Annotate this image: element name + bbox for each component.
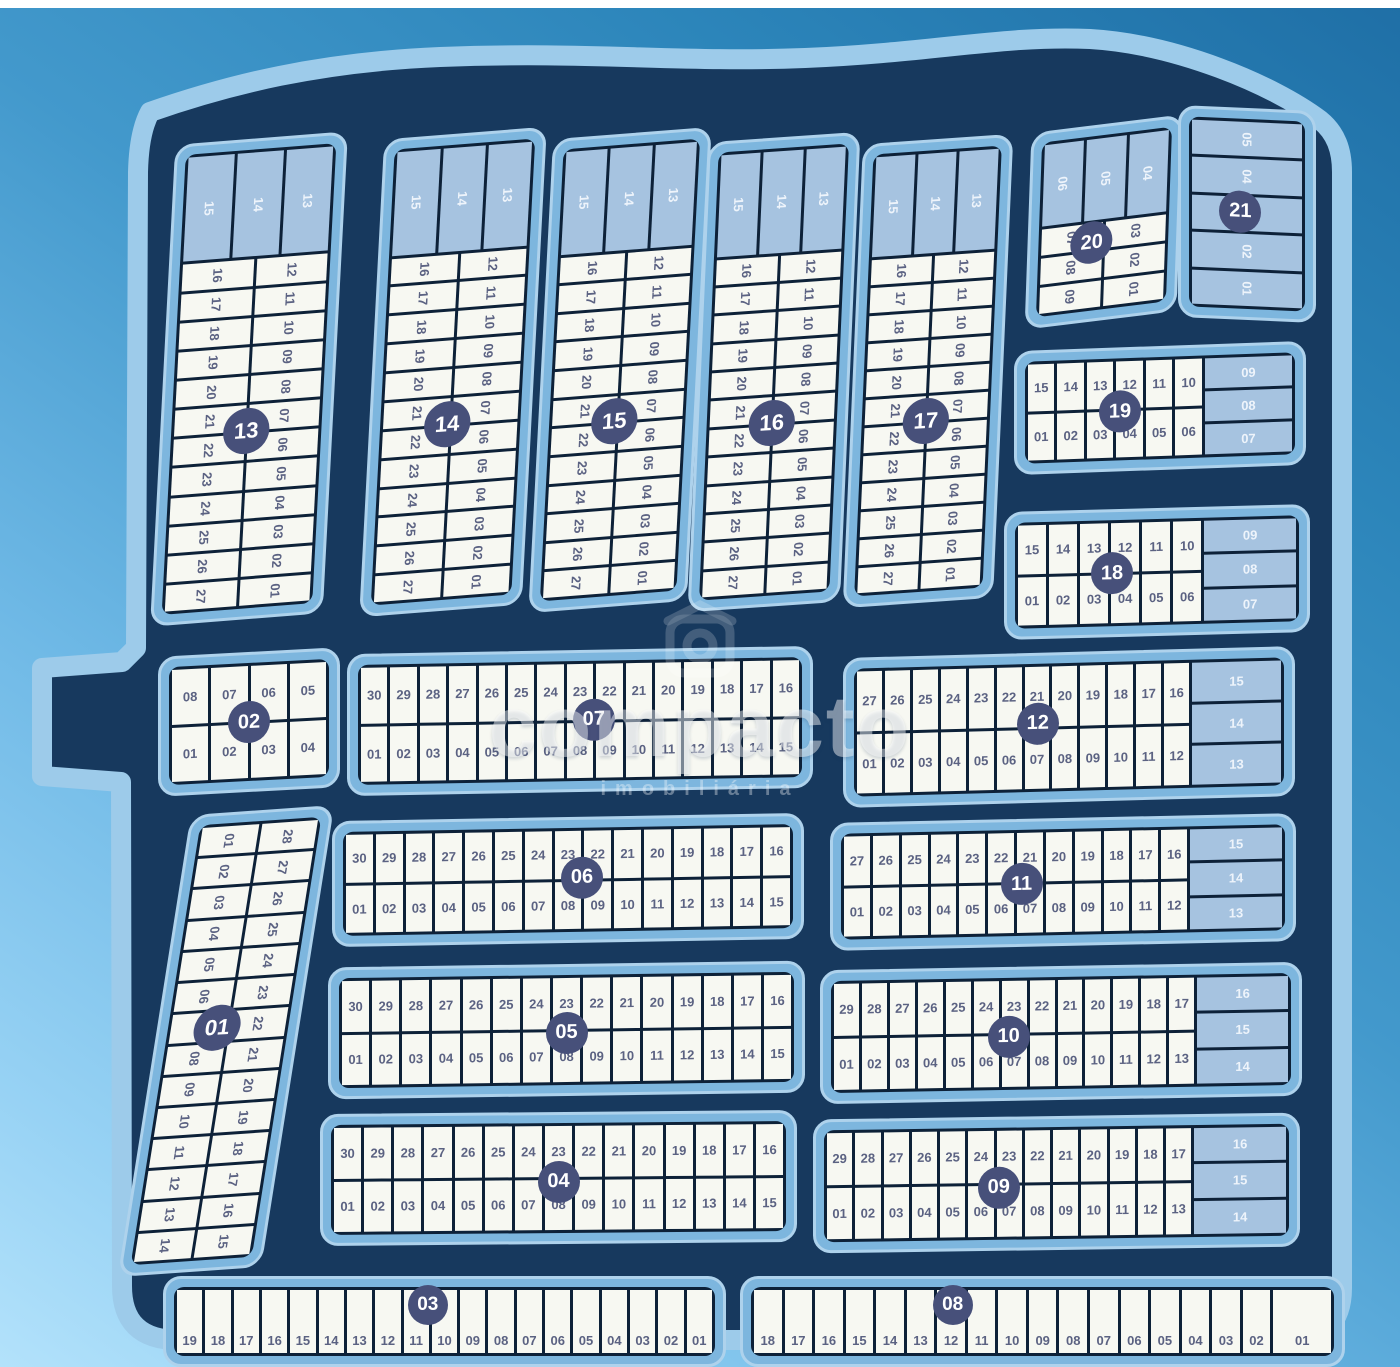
lot-07-11[interactable]: 11 <box>655 721 681 777</box>
lot-06-28[interactable]: 28 <box>406 833 433 881</box>
lot-05-22[interactable]: 22 <box>583 977 610 1028</box>
lot-02-04[interactable]: 04 <box>290 719 326 775</box>
lot-06-15[interactable]: 15 <box>763 878 790 926</box>
lot-10-03[interactable]: 03 <box>890 1037 915 1089</box>
lot-18-10[interactable]: 10 <box>1173 521 1201 570</box>
lot-01-23[interactable]: 23 <box>233 976 294 1008</box>
lot-05-09[interactable]: 09 <box>583 1031 610 1082</box>
lot-15-09[interactable]: 09 <box>622 333 687 364</box>
lot-13-14[interactable]: 14 <box>232 150 284 258</box>
lot-11-01[interactable]: 01 <box>844 888 870 937</box>
lot-13-20[interactable]: 20 <box>175 376 247 408</box>
lot-16-19[interactable]: 19 <box>712 341 774 371</box>
lot-07-25[interactable]: 25 <box>508 665 534 721</box>
lot-14-03[interactable]: 03 <box>446 508 513 539</box>
lot-13-17[interactable]: 17 <box>180 289 252 321</box>
lot-13-18[interactable]: 18 <box>179 318 251 350</box>
lot-12-23[interactable]: 23 <box>969 668 994 728</box>
lot-09-21[interactable]: 21 <box>1053 1130 1078 1182</box>
lot-04-16[interactable]: 16 <box>756 1124 783 1175</box>
lot-15-02[interactable]: 02 <box>611 534 676 565</box>
lot-05-24[interactable]: 24 <box>523 978 550 1029</box>
lot-06-20[interactable]: 20 <box>644 829 671 877</box>
lot-19-10[interactable]: 10 <box>1175 359 1201 406</box>
lot-10-21[interactable]: 21 <box>1058 980 1083 1032</box>
lot-11-04[interactable]: 04 <box>931 886 957 935</box>
lot-03-16[interactable]: 16 <box>262 1290 287 1353</box>
lot-18-15[interactable]: 15 <box>1018 525 1046 574</box>
lot-01-10[interactable]: 10 <box>154 1105 215 1137</box>
lot-09-09[interactable]: 09 <box>1053 1184 1078 1236</box>
lot-11-08[interactable]: 08 <box>1046 883 1072 932</box>
lot-01-12[interactable]: 12 <box>144 1168 205 1200</box>
lot-07-10[interactable]: 10 <box>626 721 652 777</box>
lot-13-11[interactable]: 11 <box>254 283 326 315</box>
lot-06-05[interactable]: 05 <box>465 883 492 931</box>
lot-13-10[interactable]: 10 <box>252 312 324 344</box>
lot-06-27[interactable]: 27 <box>435 833 462 881</box>
lot-14-10[interactable]: 10 <box>456 306 523 337</box>
lot-17-05[interactable]: 05 <box>925 448 986 477</box>
lot-16-27[interactable]: 27 <box>702 568 764 598</box>
lot-11-18[interactable]: 18 <box>1104 831 1130 880</box>
lot-15-26[interactable]: 26 <box>545 539 610 570</box>
lot-08-09[interactable]: 09 <box>1029 1290 1057 1353</box>
lot-17-27[interactable]: 27 <box>857 564 918 593</box>
lot-12-18[interactable]: 18 <box>1108 664 1133 724</box>
lot-01-11[interactable]: 11 <box>149 1136 210 1168</box>
lot-12-03[interactable]: 03 <box>913 732 938 792</box>
lot-14-17[interactable]: 17 <box>389 282 456 313</box>
lot-08-14[interactable]: 14 <box>876 1290 904 1353</box>
lot-17-13[interactable]: 13 <box>956 149 999 252</box>
lot-01-14[interactable]: 14 <box>134 1230 195 1262</box>
lot-09-13[interactable]: 13 <box>1166 1183 1191 1235</box>
lot-19-02[interactable]: 02 <box>1057 412 1083 459</box>
lot-10-09[interactable]: 09 <box>1058 1034 1083 1086</box>
lot-10-01[interactable]: 01 <box>834 1038 859 1090</box>
lot-04-18[interactable]: 18 <box>696 1125 723 1176</box>
lot-03-15[interactable]: 15 <box>290 1290 315 1353</box>
lot-07-16[interactable]: 16 <box>773 660 799 716</box>
lot-06-06[interactable]: 06 <box>495 882 522 930</box>
lot-09-22[interactable]: 22 <box>1025 1130 1050 1182</box>
lot-14-02[interactable]: 02 <box>444 537 511 568</box>
lot-12-09[interactable]: 09 <box>1080 728 1105 788</box>
lot-10-11[interactable]: 11 <box>1113 1033 1138 1085</box>
lot-10-12[interactable]: 12 <box>1141 1033 1166 1085</box>
lot-13-25[interactable]: 25 <box>168 522 240 554</box>
lot-04-05[interactable]: 05 <box>455 1180 482 1231</box>
lot-19-05[interactable]: 05 <box>1146 409 1172 456</box>
lot-13-12[interactable]: 12 <box>255 254 327 286</box>
lot-06-07[interactable]: 07 <box>525 882 552 930</box>
lot-15-27[interactable]: 27 <box>543 568 608 599</box>
lot-16-18[interactable]: 18 <box>713 312 775 342</box>
lot-17-15[interactable]: 15 <box>872 155 915 258</box>
lot-03-13[interactable]: 13 <box>347 1290 372 1353</box>
lot-16-17[interactable]: 17 <box>715 284 777 314</box>
lot-13-27[interactable]: 27 <box>165 580 237 612</box>
lot-17-10[interactable]: 10 <box>931 308 992 337</box>
lot-15-12[interactable]: 12 <box>626 247 691 278</box>
lot-17-01[interactable]: 01 <box>920 560 981 589</box>
lot-14-16[interactable]: 16 <box>391 254 458 285</box>
lot-17-17[interactable]: 17 <box>870 284 931 313</box>
lot-18-11[interactable]: 11 <box>1142 522 1170 571</box>
lot-04-29[interactable]: 29 <box>364 1127 391 1178</box>
lot-15-16[interactable]: 16 <box>560 253 625 284</box>
lot-18-02[interactable]: 02 <box>1049 576 1077 625</box>
lot-09-26[interactable]: 26 <box>912 1132 937 1184</box>
lot-09-20[interactable]: 20 <box>1081 1129 1106 1181</box>
lot-07-07[interactable]: 07 <box>537 723 563 779</box>
lot-14-20[interactable]: 20 <box>385 369 452 400</box>
lot-01-20[interactable]: 20 <box>218 1070 279 1102</box>
lot-06-11[interactable]: 11 <box>644 880 671 928</box>
lot-10-27[interactable]: 27 <box>890 983 915 1035</box>
lot-01-28[interactable]: 28 <box>257 820 318 852</box>
lot-10-29[interactable]: 29 <box>834 984 859 1036</box>
lot-07-27[interactable]: 27 <box>449 666 475 722</box>
lot-04-25[interactable]: 25 <box>485 1126 512 1177</box>
lot-04-20[interactable]: 20 <box>635 1125 662 1176</box>
lot-04-06[interactable]: 06 <box>485 1180 512 1231</box>
lot-16-05[interactable]: 05 <box>771 450 833 480</box>
lot-20-04[interactable]: 04 <box>1127 130 1169 216</box>
lot-10-05[interactable]: 05 <box>946 1036 971 1088</box>
lot-19-09[interactable]: 09 <box>1205 355 1292 388</box>
lot-01-03[interactable]: 03 <box>188 887 249 919</box>
lot-14-18[interactable]: 18 <box>388 311 455 342</box>
lot-09-08[interactable]: 08 <box>1025 1185 1050 1237</box>
lot-06-25[interactable]: 25 <box>495 832 522 880</box>
lot-10-25[interactable]: 25 <box>946 982 971 1034</box>
lot-12-24[interactable]: 24 <box>941 669 966 729</box>
lot-15-10[interactable]: 10 <box>623 305 688 336</box>
lot-06-13[interactable]: 13 <box>704 879 731 927</box>
lot-15-15[interactable]: 15 <box>561 149 608 255</box>
lot-11-25[interactable]: 25 <box>902 835 928 884</box>
lot-06-03[interactable]: 03 <box>406 884 433 932</box>
lot-14-09[interactable]: 09 <box>455 335 522 366</box>
lot-20-02[interactable]: 02 <box>1104 243 1165 277</box>
lot-05-25[interactable]: 25 <box>493 979 520 1030</box>
lot-09-27[interactable]: 27 <box>884 1132 909 1184</box>
lot-05-27[interactable]: 27 <box>432 979 459 1030</box>
lot-21-04[interactable]: 04 <box>1192 157 1302 196</box>
lot-15-24[interactable]: 24 <box>548 482 613 513</box>
lot-07-21[interactable]: 21 <box>626 663 652 719</box>
lot-09-18[interactable]: 18 <box>1138 1129 1163 1181</box>
lot-01-26[interactable]: 26 <box>248 882 309 914</box>
lot-07-01[interactable]: 01 <box>361 726 387 782</box>
lot-07-04[interactable]: 04 <box>449 724 475 780</box>
lot-01-19[interactable]: 19 <box>213 1101 274 1133</box>
lot-13-19[interactable]: 19 <box>177 347 249 379</box>
lot-01-09[interactable]: 09 <box>159 1074 220 1106</box>
lot-14-05[interactable]: 05 <box>449 450 516 481</box>
lot-05-30[interactable]: 30 <box>342 981 369 1032</box>
lot-18-06[interactable]: 06 <box>1173 572 1201 621</box>
lot-05-06[interactable]: 06 <box>493 1032 520 1083</box>
lot-13-03[interactable]: 03 <box>242 516 314 548</box>
lot-20-06[interactable]: 06 <box>1042 140 1084 226</box>
lot-06-21[interactable]: 21 <box>614 830 641 878</box>
lot-08-10[interactable]: 10 <box>998 1290 1026 1353</box>
lot-16-14[interactable]: 14 <box>759 150 803 254</box>
lot-10-10[interactable]: 10 <box>1085 1034 1110 1086</box>
lot-18-01[interactable]: 01 <box>1018 576 1046 625</box>
lot-05-15[interactable]: 15 <box>764 1028 791 1079</box>
lot-05-01[interactable]: 01 <box>342 1034 369 1085</box>
lot-07-18[interactable]: 18 <box>714 661 740 717</box>
lot-04-03[interactable]: 03 <box>394 1181 421 1232</box>
lot-12-02[interactable]: 02 <box>885 733 910 793</box>
lot-04-12[interactable]: 12 <box>666 1178 693 1229</box>
lot-04-04[interactable]: 04 <box>424 1180 451 1231</box>
lot-18-09[interactable]: 09 <box>1204 518 1296 552</box>
lot-09-12[interactable]: 12 <box>1138 1183 1163 1235</box>
lot-11-05[interactable]: 05 <box>959 885 985 934</box>
lot-07-19[interactable]: 19 <box>684 662 710 718</box>
lot-01-18[interactable]: 18 <box>208 1132 269 1164</box>
lot-17-03[interactable]: 03 <box>922 504 983 533</box>
lot-16-08[interactable]: 08 <box>775 365 837 395</box>
lot-13-24[interactable]: 24 <box>169 493 241 525</box>
lot-05-17[interactable]: 17 <box>734 975 761 1026</box>
lot-01-16[interactable]: 16 <box>198 1195 259 1227</box>
lot-03-08[interactable]: 08 <box>488 1290 513 1353</box>
lot-05-14[interactable]: 14 <box>734 1029 761 1080</box>
lot-03-05[interactable]: 05 <box>573 1290 598 1353</box>
lot-03-06[interactable]: 06 <box>545 1290 570 1353</box>
lot-15-14[interactable]: 14 <box>606 145 653 251</box>
lot-10-17[interactable]: 17 <box>1169 978 1194 1030</box>
lot-10-28[interactable]: 28 <box>862 983 887 1035</box>
lot-03-19[interactable]: 19 <box>177 1290 202 1353</box>
lot-06-19[interactable]: 19 <box>674 829 701 877</box>
lot-16-09[interactable]: 09 <box>776 336 838 366</box>
lot-09-16[interactable]: 16 <box>1194 1127 1286 1162</box>
lot-09-28[interactable]: 28 <box>855 1132 880 1184</box>
lot-21-02[interactable]: 02 <box>1192 232 1302 271</box>
lot-04-13[interactable]: 13 <box>696 1178 723 1229</box>
lot-16-10[interactable]: 10 <box>777 308 839 338</box>
lot-02-05[interactable]: 05 <box>290 662 326 718</box>
lot-14-14[interactable]: 14 <box>438 145 486 252</box>
lot-09-25[interactable]: 25 <box>940 1131 965 1183</box>
lot-09-14[interactable]: 14 <box>1194 1199 1286 1234</box>
lot-03-07[interactable]: 07 <box>517 1290 542 1353</box>
lot-14-13[interactable]: 13 <box>484 142 532 249</box>
lot-17-20[interactable]: 20 <box>866 368 927 397</box>
lot-10-19[interactable]: 19 <box>1113 979 1138 1031</box>
lot-11-24[interactable]: 24 <box>931 834 957 883</box>
lot-14-11[interactable]: 11 <box>458 277 525 308</box>
lot-15-18[interactable]: 18 <box>557 310 622 341</box>
lot-02-01[interactable]: 01 <box>172 726 208 782</box>
lot-04-09[interactable]: 09 <box>575 1179 602 1230</box>
lot-19-01[interactable]: 01 <box>1028 413 1054 460</box>
lot-17-08[interactable]: 08 <box>929 364 990 393</box>
lot-16-26[interactable]: 26 <box>703 539 765 569</box>
lot-17-14[interactable]: 14 <box>914 152 957 255</box>
lot-08-01[interactable]: 01 <box>1273 1290 1331 1353</box>
lot-11-26[interactable]: 26 <box>873 835 899 884</box>
lot-08-06[interactable]: 06 <box>1121 1290 1149 1353</box>
lot-10-22[interactable]: 22 <box>1030 980 1055 1032</box>
lot-06-24[interactable]: 24 <box>525 831 552 879</box>
lot-13-04[interactable]: 04 <box>243 487 315 519</box>
lot-03-03[interactable]: 03 <box>630 1290 655 1353</box>
lot-10-16[interactable]: 16 <box>1197 976 1288 1011</box>
lot-04-30[interactable]: 30 <box>334 1128 361 1179</box>
lot-04-27[interactable]: 27 <box>424 1127 451 1178</box>
lot-12-08[interactable]: 08 <box>1052 728 1077 788</box>
lot-11-12[interactable]: 12 <box>1161 881 1187 930</box>
lot-17-16[interactable]: 16 <box>871 256 932 285</box>
lot-09-11[interactable]: 11 <box>1110 1183 1135 1235</box>
lot-14-15[interactable]: 15 <box>392 149 440 256</box>
lot-01-02[interactable]: 02 <box>193 855 254 887</box>
lot-11-02[interactable]: 02 <box>873 887 899 936</box>
lot-01-24[interactable]: 24 <box>238 945 299 977</box>
lot-07-13[interactable]: 13 <box>714 720 740 776</box>
lot-11-03[interactable]: 03 <box>902 886 928 935</box>
lot-09-01[interactable]: 01 <box>827 1187 852 1239</box>
lot-17-12[interactable]: 12 <box>933 252 994 281</box>
lot-07-26[interactable]: 26 <box>479 665 505 721</box>
lot-21-05[interactable]: 05 <box>1192 120 1302 159</box>
lot-10-18[interactable]: 18 <box>1141 978 1166 1030</box>
lot-13-09[interactable]: 09 <box>251 341 323 373</box>
lot-14-23[interactable]: 23 <box>380 456 447 487</box>
lot-04-01[interactable]: 01 <box>334 1181 361 1232</box>
lot-13-26[interactable]: 26 <box>166 551 238 583</box>
lot-01-21[interactable]: 21 <box>223 1039 284 1071</box>
lot-01-01[interactable]: 01 <box>198 824 259 856</box>
lot-04-19[interactable]: 19 <box>666 1125 693 1176</box>
lot-15-04[interactable]: 04 <box>614 476 679 507</box>
lot-06-02[interactable]: 02 <box>376 884 403 932</box>
lot-04-14[interactable]: 14 <box>726 1178 753 1229</box>
lot-05-21[interactable]: 21 <box>613 977 640 1028</box>
lot-10-02[interactable]: 02 <box>862 1038 887 1090</box>
lot-14-08[interactable]: 08 <box>453 364 520 395</box>
lot-06-01[interactable]: 01 <box>346 885 373 933</box>
lot-19-08[interactable]: 08 <box>1205 388 1292 421</box>
lot-18-07[interactable]: 07 <box>1204 587 1296 621</box>
lot-10-20[interactable]: 20 <box>1085 979 1110 1031</box>
lot-01-04[interactable]: 04 <box>183 918 244 950</box>
lot-08-13[interactable]: 13 <box>907 1290 935 1353</box>
lot-05-13[interactable]: 13 <box>704 1029 731 1080</box>
lot-04-15[interactable]: 15 <box>756 1178 783 1229</box>
lot-09-05[interactable]: 05 <box>940 1186 965 1238</box>
lot-07-12[interactable]: 12 <box>684 720 710 776</box>
lot-03-18[interactable]: 18 <box>205 1290 230 1353</box>
lot-04-11[interactable]: 11 <box>635 1179 662 1230</box>
lot-17-25[interactable]: 25 <box>860 508 921 537</box>
lot-13-02[interactable]: 02 <box>240 545 312 577</box>
lot-08-05[interactable]: 05 <box>1151 1290 1179 1353</box>
lot-11-10[interactable]: 10 <box>1104 882 1130 931</box>
lot-14-26[interactable]: 26 <box>375 542 442 573</box>
lot-12-14[interactable]: 14 <box>1192 702 1281 743</box>
lot-05-18[interactable]: 18 <box>704 976 731 1027</box>
lot-13-16[interactable]: 16 <box>182 260 254 292</box>
lot-16-03[interactable]: 03 <box>768 507 830 537</box>
lot-03-14[interactable]: 14 <box>319 1290 344 1353</box>
lot-04-22[interactable]: 22 <box>575 1126 602 1177</box>
lot-09-29[interactable]: 29 <box>827 1133 852 1185</box>
lot-04-28[interactable]: 28 <box>394 1127 421 1178</box>
lot-12-17[interactable]: 17 <box>1136 664 1161 724</box>
lot-15-05[interactable]: 05 <box>616 448 681 479</box>
lot-07-06[interactable]: 06 <box>508 723 534 779</box>
lot-21-01[interactable]: 01 <box>1192 269 1302 308</box>
lot-01-15[interactable]: 15 <box>193 1226 254 1258</box>
lot-13-01[interactable]: 01 <box>239 574 311 606</box>
lot-16-20[interactable]: 20 <box>711 369 773 399</box>
lot-10-26[interactable]: 26 <box>918 982 943 1034</box>
lot-04-24[interactable]: 24 <box>515 1126 542 1177</box>
lot-15-08[interactable]: 08 <box>620 362 685 393</box>
lot-09-10[interactable]: 10 <box>1081 1184 1106 1236</box>
lot-17-19[interactable]: 19 <box>867 340 928 369</box>
lot-12-27[interactable]: 27 <box>857 671 882 731</box>
lot-14-19[interactable]: 19 <box>386 340 453 371</box>
lot-12-04[interactable]: 04 <box>941 731 966 791</box>
lot-13-23[interactable]: 23 <box>171 464 243 496</box>
lot-13-05[interactable]: 05 <box>245 458 317 490</box>
lot-11-19[interactable]: 19 <box>1075 831 1101 880</box>
lot-11-11[interactable]: 11 <box>1132 882 1158 931</box>
lot-11-27[interactable]: 27 <box>844 836 870 885</box>
lot-11-23[interactable]: 23 <box>959 834 985 883</box>
lot-11-09[interactable]: 09 <box>1075 883 1101 932</box>
lot-08-03[interactable]: 03 <box>1212 1290 1240 1353</box>
lot-05-19[interactable]: 19 <box>674 976 701 1027</box>
lot-05-12[interactable]: 12 <box>674 1030 701 1081</box>
lot-04-17[interactable]: 17 <box>726 1124 753 1175</box>
lot-17-18[interactable]: 18 <box>868 312 929 341</box>
lot-16-11[interactable]: 11 <box>778 280 840 310</box>
lot-15-19[interactable]: 19 <box>555 339 620 370</box>
lot-12-25[interactable]: 25 <box>913 669 938 729</box>
lot-07-02[interactable]: 02 <box>390 725 416 781</box>
lot-05-05[interactable]: 05 <box>463 1033 490 1084</box>
lot-04-10[interactable]: 10 <box>605 1179 632 1230</box>
lot-03-12[interactable]: 12 <box>375 1290 400 1353</box>
lot-05-02[interactable]: 02 <box>372 1034 399 1085</box>
lot-06-18[interactable]: 18 <box>704 828 731 876</box>
lot-14-27[interactable]: 27 <box>374 571 441 602</box>
lot-12-13[interactable]: 13 <box>1192 744 1281 785</box>
lot-16-01[interactable]: 01 <box>766 563 828 593</box>
lot-16-15[interactable]: 15 <box>717 153 761 257</box>
lot-14-25[interactable]: 25 <box>377 513 444 544</box>
lot-15-25[interactable]: 25 <box>546 510 611 541</box>
lot-05-20[interactable]: 20 <box>643 977 670 1028</box>
lot-04-21[interactable]: 21 <box>605 1125 632 1176</box>
lot-16-16[interactable]: 16 <box>716 256 778 286</box>
lot-13-13[interactable]: 13 <box>282 146 334 254</box>
lot-03-17[interactable]: 17 <box>234 1290 259 1353</box>
lot-07-29[interactable]: 29 <box>390 667 416 723</box>
lot-09-19[interactable]: 19 <box>1110 1129 1135 1181</box>
